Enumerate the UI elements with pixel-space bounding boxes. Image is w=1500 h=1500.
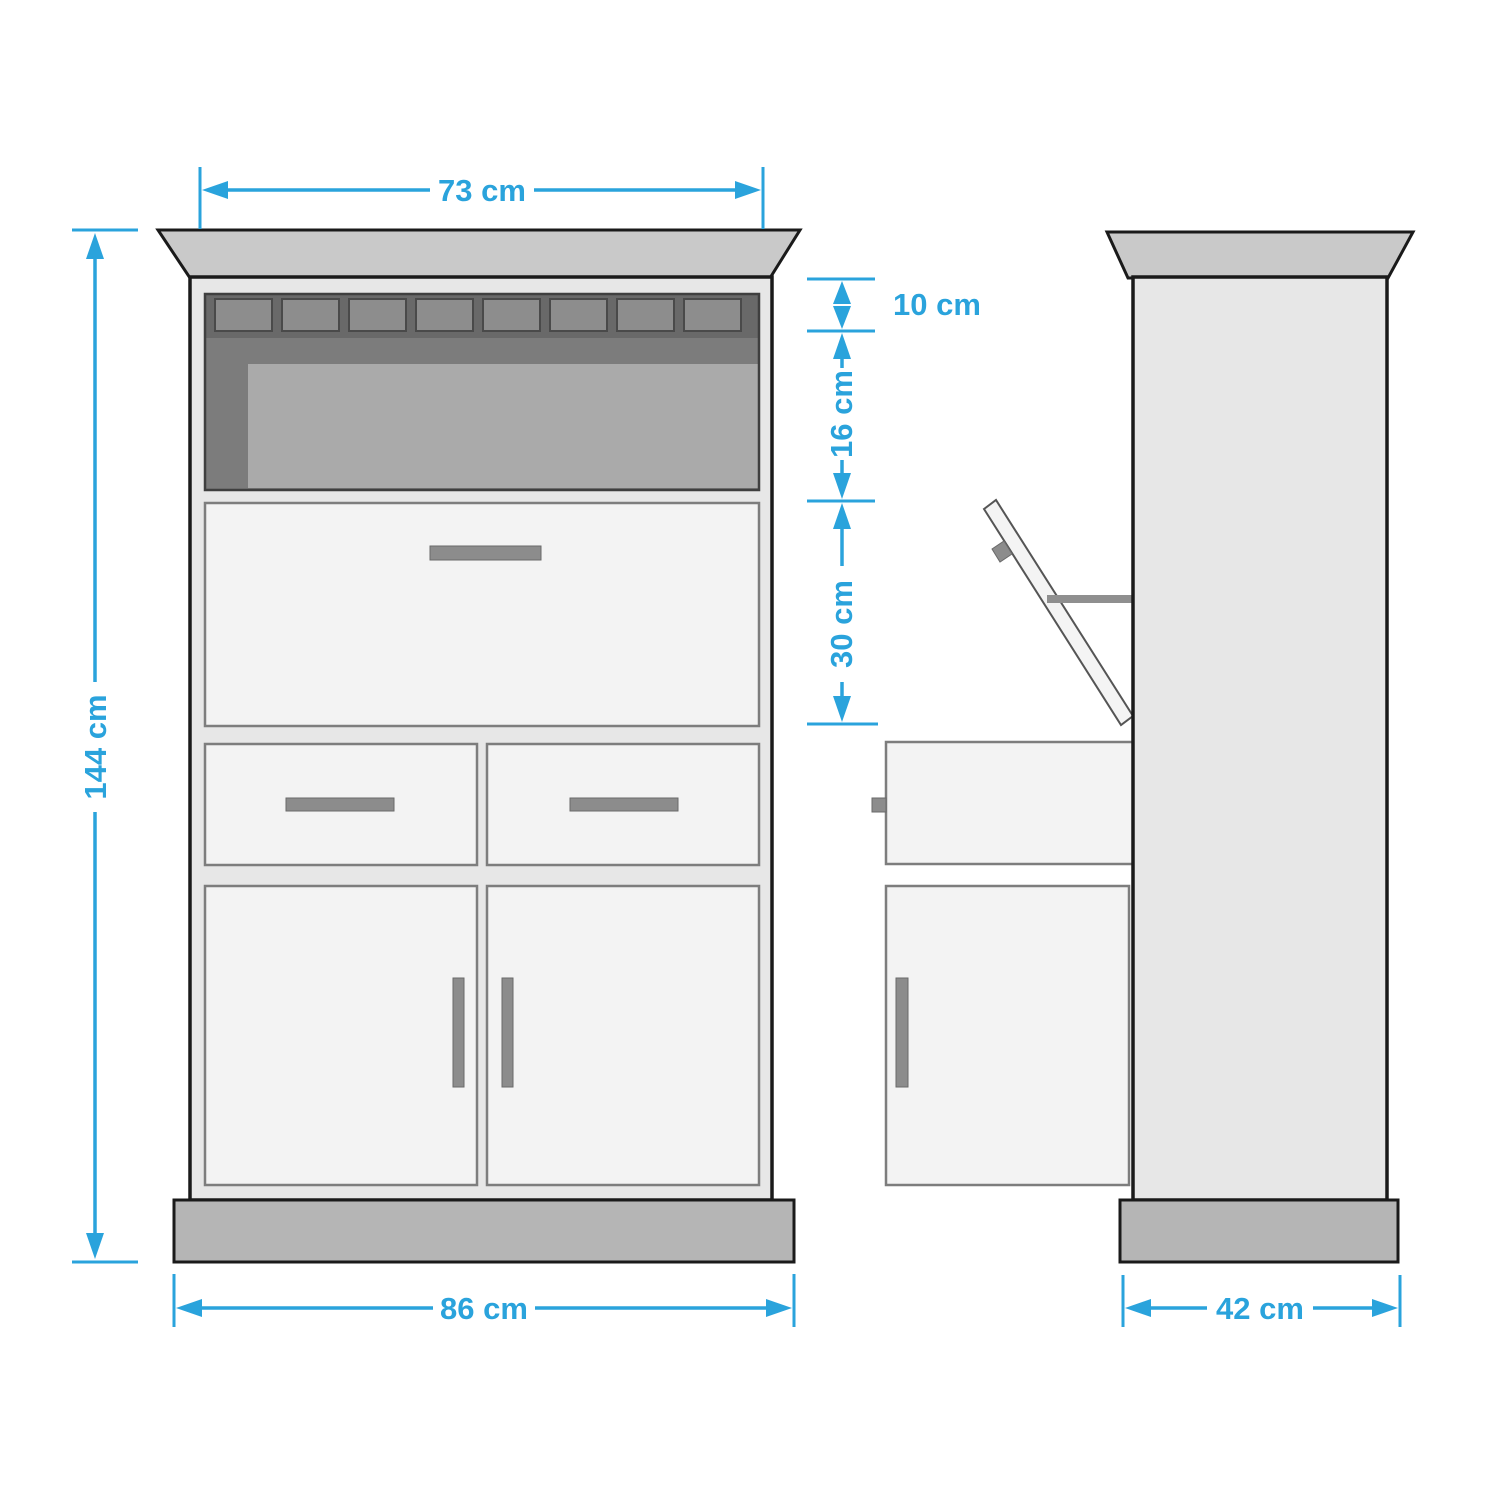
arrow-left-icon — [202, 181, 228, 199]
arrow-down-icon — [86, 1233, 104, 1259]
wine-glass-rack-cell — [215, 299, 272, 331]
side-drawer-handle — [872, 798, 886, 812]
arrow-right-icon — [735, 181, 761, 199]
front-view — [158, 230, 800, 1262]
flap-support-arm — [1047, 595, 1135, 603]
dimension-rack-section: 10 cm — [807, 279, 981, 331]
compartment-interior-panel — [248, 364, 759, 488]
arrow-up-icon — [833, 503, 851, 529]
arrow-right-icon — [1372, 1299, 1398, 1317]
dim-label-flap-section: 30 cm — [824, 580, 859, 668]
arrow-up-icon — [86, 233, 104, 259]
wine-glass-rack-cell — [550, 299, 607, 331]
arrow-right-icon — [766, 1299, 792, 1317]
side-open-door — [886, 886, 1129, 1185]
front-plinth-base — [174, 1200, 794, 1262]
arrow-down-icon — [833, 696, 851, 722]
wine-glass-rack-cell — [416, 299, 473, 331]
right-door — [487, 886, 759, 1185]
side-open-flap-board — [984, 500, 1133, 725]
wine-glass-rack-cell — [282, 299, 339, 331]
diagram-canvas: 73 cm 144 cm 10 cm 16 cm — [0, 0, 1500, 1500]
side-door-handle — [896, 978, 908, 1087]
wine-glass-rack-cell — [349, 299, 406, 331]
furniture-dimension-diagram: 73 cm 144 cm 10 cm 16 cm — [0, 0, 1500, 1500]
side-extended-drawer — [886, 742, 1133, 864]
flap-door-handle — [430, 546, 541, 560]
side-cabinet-body — [1133, 277, 1387, 1200]
dim-label-rack-section: 10 cm — [893, 287, 981, 322]
front-open-compartment — [205, 294, 759, 490]
dim-label-base-width: 86 cm — [440, 1291, 528, 1326]
wine-glass-rack-cell — [617, 299, 674, 331]
left-drawer-handle — [286, 798, 394, 811]
arrow-down-icon — [833, 306, 851, 329]
dimension-top-width: 73 cm — [200, 167, 763, 229]
dim-label-compartment: 16 cm — [824, 370, 859, 458]
arrow-up-icon — [833, 281, 851, 304]
dimension-overall-height: 144 cm — [72, 230, 138, 1262]
side-plinth-base — [1120, 1200, 1398, 1262]
dim-label-overall-height: 144 cm — [78, 694, 113, 799]
dim-label-top-width: 73 cm — [438, 173, 526, 208]
side-crown-molding — [1107, 232, 1413, 278]
dimension-compartment: 16 cm — [807, 333, 875, 501]
dimension-base-width: 86 cm — [174, 1274, 794, 1327]
side-view — [872, 232, 1413, 1262]
right-drawer-handle — [570, 798, 678, 811]
front-crown-molding — [158, 230, 800, 278]
flap-door-panel — [205, 503, 759, 726]
front-flap-door — [205, 503, 759, 726]
wine-glass-rack-cell — [684, 299, 741, 331]
right-door-handle — [502, 978, 513, 1087]
arrow-left-icon — [176, 1299, 202, 1317]
dim-label-depth: 42 cm — [1216, 1291, 1304, 1326]
arrow-left-icon — [1125, 1299, 1151, 1317]
dimension-flap-section: 30 cm — [807, 503, 878, 724]
dimension-depth: 42 cm — [1123, 1275, 1400, 1327]
left-door-handle — [453, 978, 464, 1087]
arrow-up-icon — [833, 333, 851, 359]
wine-glass-rack-cell — [483, 299, 540, 331]
arrow-down-icon — [833, 473, 851, 499]
left-door — [205, 886, 477, 1185]
